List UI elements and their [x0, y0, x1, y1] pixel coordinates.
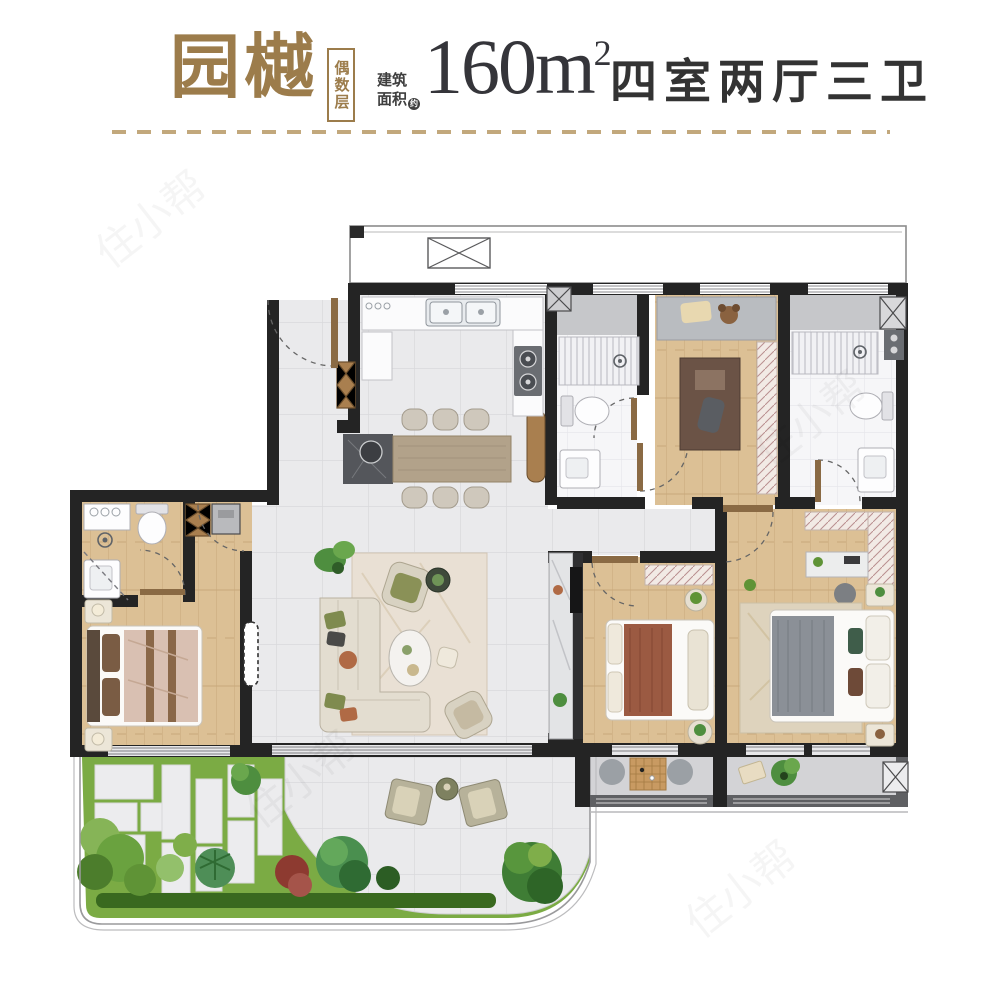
sliding-door [244, 622, 258, 686]
toilet-1 [136, 504, 168, 544]
master-bed [770, 610, 894, 722]
pantry-door [527, 410, 545, 482]
svg-text:住小帮: 住小帮 [87, 162, 215, 277]
tv-screen [570, 567, 582, 613]
bed-1 [87, 626, 202, 726]
coffee-table [389, 630, 431, 686]
stool [834, 583, 856, 605]
svg-text:住小帮: 住小帮 [677, 832, 805, 947]
garden-terrace [74, 757, 596, 930]
platform-bed [657, 297, 776, 340]
dresser [806, 552, 868, 577]
bed-2 [606, 620, 714, 720]
equipment-balcony [350, 226, 906, 283]
toilet-2 [561, 396, 609, 426]
living-room [314, 541, 496, 742]
stove [514, 346, 542, 396]
shower-3 [792, 332, 878, 374]
sink-1 [84, 504, 130, 530]
double-sink [426, 299, 500, 326]
dining-table [393, 436, 511, 482]
floor-plan: 住小帮 住小帮 住小帮 住小帮 [0, 0, 1000, 1000]
master-wardrobe [868, 512, 894, 588]
floorplan-page: 园樾 偶数层 建筑 面积约 160m2 四室两厅三卫 [0, 0, 1000, 1000]
shower-2 [559, 337, 639, 385]
tv-wall [549, 553, 583, 739]
bed2-wardrobe [645, 565, 713, 585]
